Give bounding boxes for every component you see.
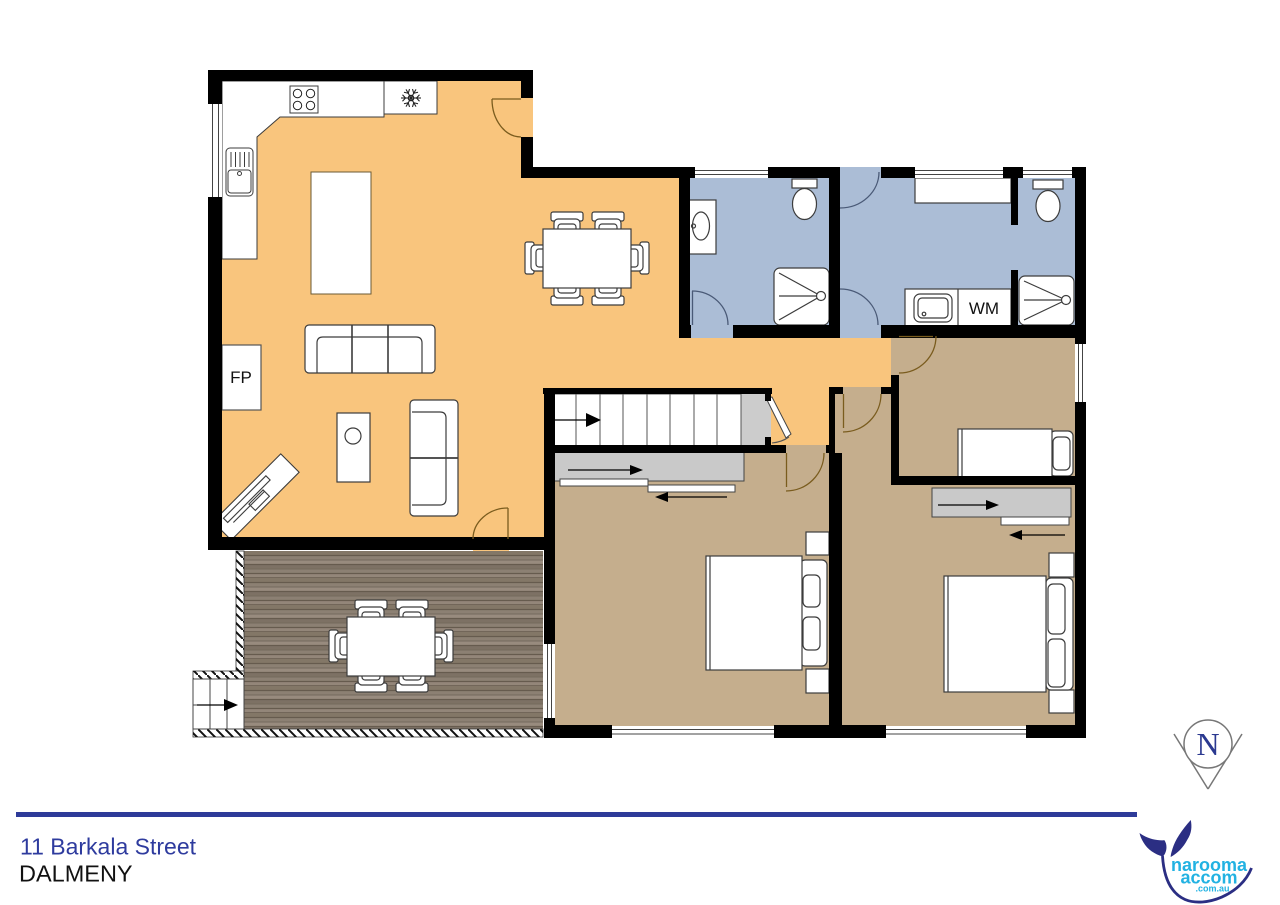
svg-text:11 Barkala Street: 11 Barkala Street [20,834,197,860]
svg-text:WM: WM [969,299,999,318]
svg-text:DALMENY: DALMENY [19,861,133,887]
svg-text:.com.au: .com.au [1195,884,1229,894]
svg-text:FP: FP [230,368,252,387]
svg-text:N: N [1196,726,1219,762]
